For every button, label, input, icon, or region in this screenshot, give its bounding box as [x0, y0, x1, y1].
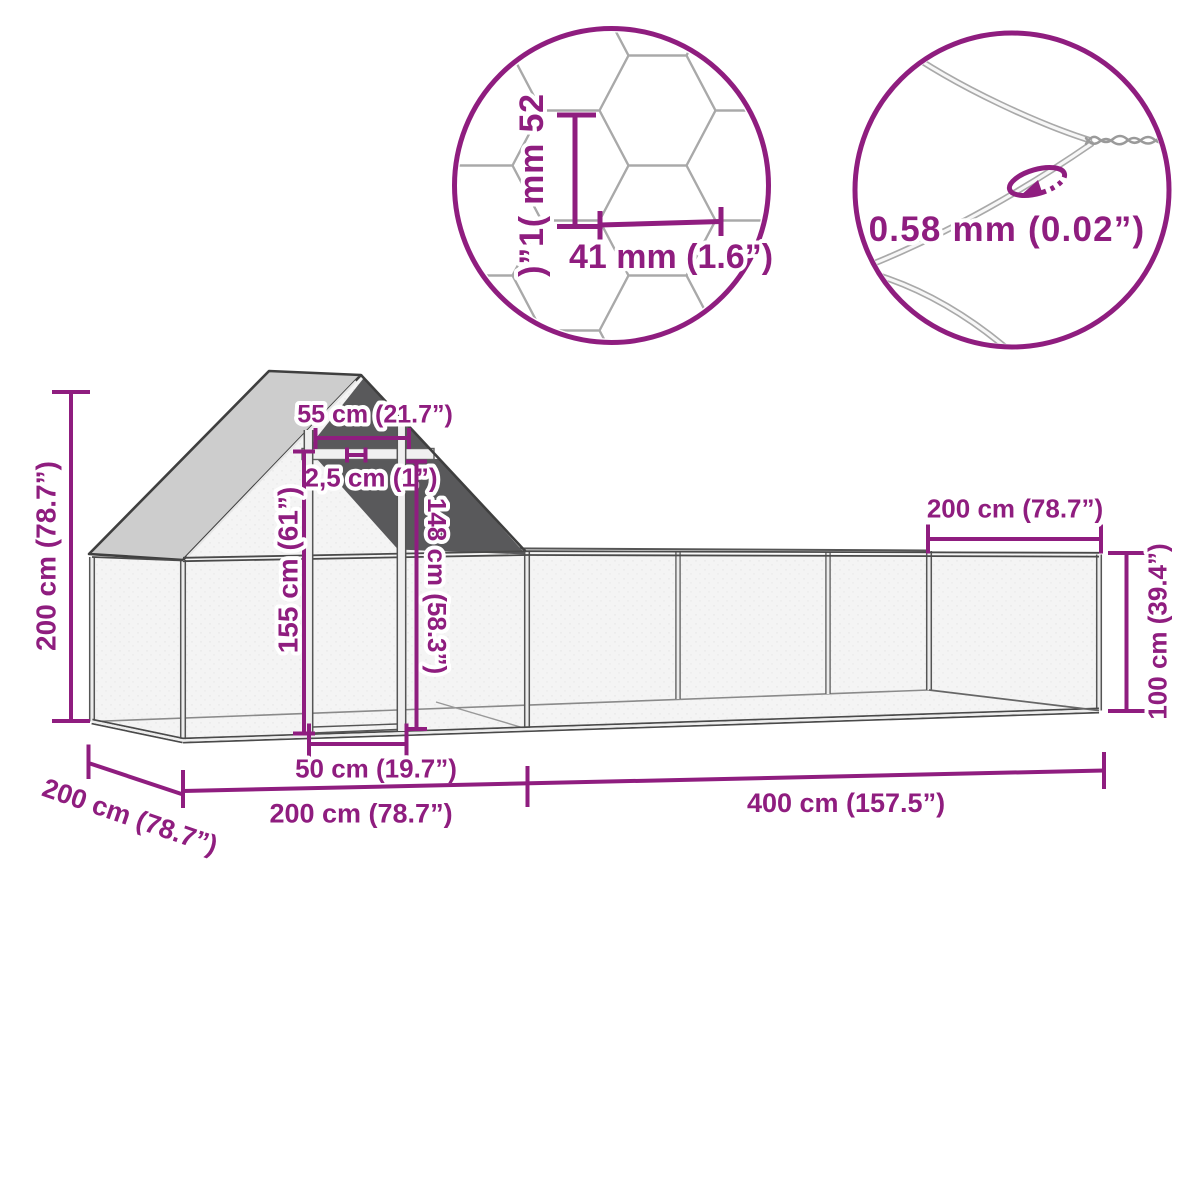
svg-text:41 mm (1.6”): 41 mm (1.6”) [569, 238, 773, 276]
svg-text:400 cm (157.5”): 400 cm (157.5”) [747, 788, 945, 818]
svg-text:200 cm (78.7”): 200 cm (78.7”) [269, 799, 452, 829]
svg-text:200 cm (78.7”): 200 cm (78.7”) [31, 461, 62, 651]
svg-text:155 cm (61”): 155 cm (61”) [273, 487, 304, 654]
svg-text:0.58 mm (0.02”): 0.58 mm (0.02”) [869, 210, 1146, 249]
svg-text:)”1( mm 52: )”1( mm 52 [513, 93, 551, 277]
svg-text:50 cm (19.7”): 50 cm (19.7”) [295, 754, 457, 784]
svg-text:55 cm (21.7”): 55 cm (21.7”) [297, 401, 453, 429]
svg-text:148 cm (58.3”): 148 cm (58.3”) [422, 498, 452, 674]
svg-text:200 cm (78.7”): 200 cm (78.7”) [927, 494, 1103, 524]
svg-text:100 cm (39.4”): 100 cm (39.4”) [1143, 543, 1173, 719]
